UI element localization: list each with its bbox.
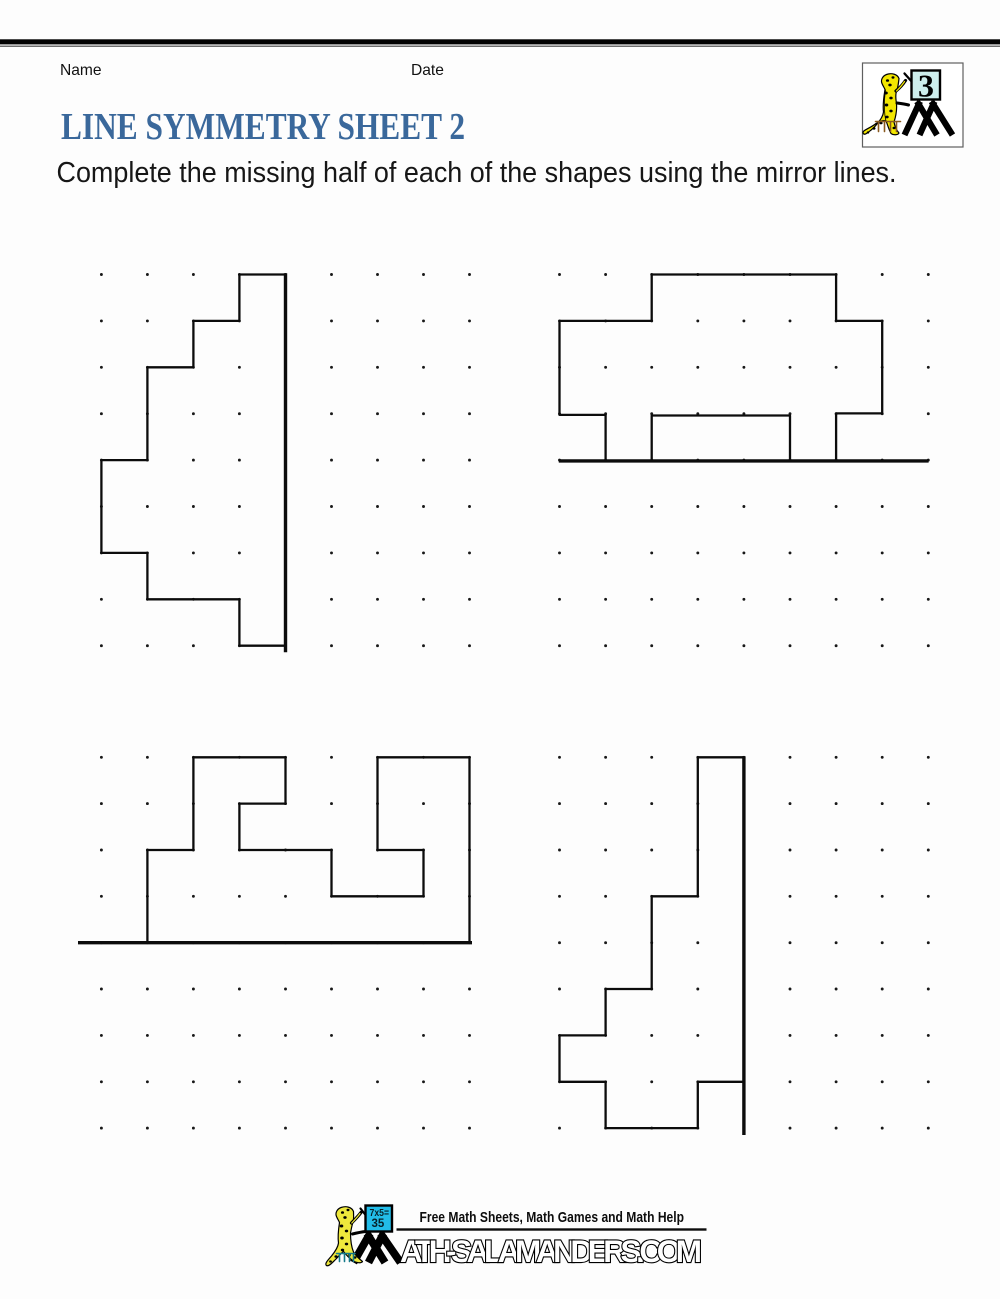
svg-text:ATH-SALAMANDERS.COM: ATH-SALAMANDERS.COM (400, 1233, 702, 1269)
svg-text:Complete the missing half of e: Complete the missing half of each of the… (57, 157, 897, 189)
svg-text:Free Math Sheets, Math Games a: Free Math Sheets, Math Games and Math He… (420, 1210, 685, 1226)
svg-text:Date: Date (411, 62, 444, 79)
svg-text:3: 3 (918, 68, 934, 104)
svg-text:LINE SYMMETRY SHEET 2: LINE SYMMETRY SHEET 2 (61, 106, 465, 148)
svg-text:Name: Name (60, 62, 102, 79)
svg-text:35: 35 (372, 1218, 385, 1230)
